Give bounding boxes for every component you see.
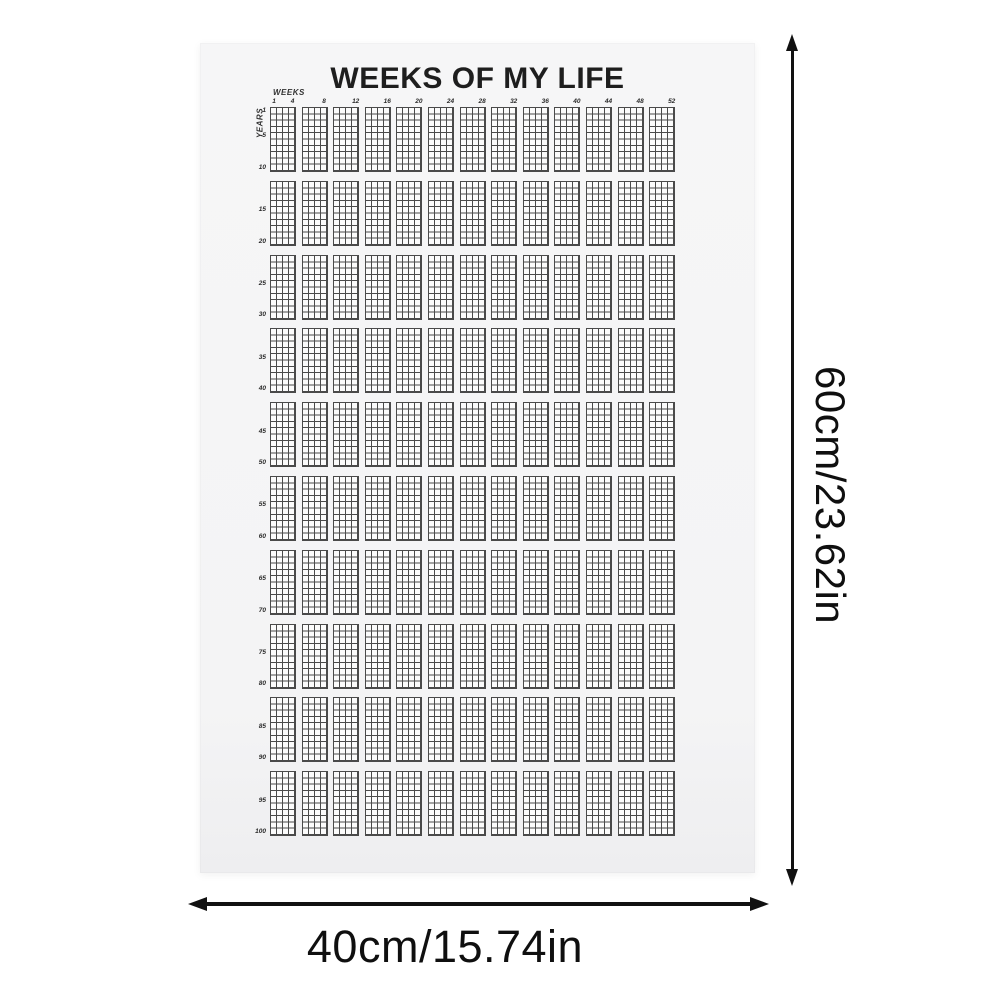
life-grid-block: [396, 107, 422, 172]
week-number: 48: [636, 98, 643, 106]
life-grid-block: [270, 181, 296, 246]
life-grid-block: [586, 624, 612, 689]
life-grid-block: [586, 402, 612, 467]
life-grid-block: [365, 697, 391, 762]
life-grid-block: [365, 550, 391, 615]
life-grid-block: [554, 550, 580, 615]
arrow-right-icon: [750, 897, 769, 911]
life-grid-block: [618, 771, 644, 836]
life-grid-block: [302, 255, 328, 320]
life-grid-block: [270, 328, 296, 393]
year-number: 1: [242, 107, 266, 115]
year-number: 20: [242, 238, 266, 246]
life-grid-block: [649, 476, 675, 541]
life-grid-block: [333, 697, 359, 762]
life-grid-block: [491, 402, 517, 467]
life-grid-block: [396, 550, 422, 615]
life-grid-block: [365, 255, 391, 320]
life-grid-block: [365, 624, 391, 689]
year-number: 5: [242, 132, 266, 140]
life-grid-block: [618, 255, 644, 320]
product-image: WEEKS OF MY LIFE WEEKS YEARS 14812162024…: [0, 0, 1000, 1000]
life-grid-block: [460, 181, 486, 246]
life-grid-block: [618, 550, 644, 615]
week-number: 32: [510, 98, 517, 106]
week-number: 1: [272, 98, 276, 106]
life-grid-block: [428, 771, 454, 836]
life-grid-block: [649, 771, 675, 836]
life-grid-block: [365, 476, 391, 541]
life-grid-block: [428, 255, 454, 320]
life-grid-block: [618, 697, 644, 762]
life-grid-block: [396, 328, 422, 393]
width-dimension-label: 40cm/15.74in: [307, 921, 583, 973]
life-grid-block: [365, 328, 391, 393]
year-number: 65: [242, 575, 266, 583]
life-grid-block: [270, 697, 296, 762]
year-number: 45: [242, 428, 266, 436]
year-number: 55: [242, 501, 266, 509]
year-number: 15: [242, 206, 266, 214]
life-grid-block: [586, 255, 612, 320]
life-grid-block: [523, 402, 549, 467]
life-calendar-poster: WEEKS OF MY LIFE WEEKS YEARS 14812162024…: [200, 43, 755, 873]
life-grid-block: [365, 771, 391, 836]
week-number: 8: [322, 98, 326, 106]
life-grid-block: [523, 328, 549, 393]
life-grid-block: [523, 107, 549, 172]
life-grid: [270, 107, 677, 837]
year-number: 10: [242, 164, 266, 172]
life-grid-block: [523, 181, 549, 246]
week-number: 44: [605, 98, 612, 106]
life-grid-block: [428, 476, 454, 541]
life-grid-block: [649, 550, 675, 615]
life-grid-block: [396, 624, 422, 689]
week-number: 24: [447, 98, 454, 106]
life-grid-block: [365, 181, 391, 246]
life-grid-block: [428, 107, 454, 172]
life-grid-block: [649, 255, 675, 320]
life-grid-block: [586, 550, 612, 615]
life-grid-block: [491, 107, 517, 172]
year-number-labels: 1510152025303540455055606570758085909510…: [242, 107, 266, 837]
life-grid-block: [618, 181, 644, 246]
life-grid-block: [649, 697, 675, 762]
life-grid-block: [586, 107, 612, 172]
life-grid-block: [649, 402, 675, 467]
life-grid-block: [333, 328, 359, 393]
life-grid-block: [270, 624, 296, 689]
life-grid-block: [333, 476, 359, 541]
life-grid-block: [428, 624, 454, 689]
year-number: 100: [242, 828, 266, 836]
week-number: 4: [291, 98, 295, 106]
life-grid-block: [460, 697, 486, 762]
life-grid-block: [460, 255, 486, 320]
life-grid-block: [302, 181, 328, 246]
life-grid-block: [333, 402, 359, 467]
life-grid-block: [649, 328, 675, 393]
life-grid-block: [270, 476, 296, 541]
life-grid-block: [460, 624, 486, 689]
life-grid-block: [491, 771, 517, 836]
life-grid-block: [396, 402, 422, 467]
year-number: 50: [242, 459, 266, 467]
life-grid-block: [460, 328, 486, 393]
life-grid-block: [396, 255, 422, 320]
week-number: 52: [668, 98, 675, 106]
life-grid-block: [460, 550, 486, 615]
life-grid-block: [491, 328, 517, 393]
life-grid-block: [428, 402, 454, 467]
life-grid-block: [554, 771, 580, 836]
life-grid-block: [428, 550, 454, 615]
year-number: 70: [242, 607, 266, 615]
year-number: 25: [242, 280, 266, 288]
life-grid-block: [333, 181, 359, 246]
life-grid-block: [586, 771, 612, 836]
life-grid-block: [365, 402, 391, 467]
life-grid-block: [618, 328, 644, 393]
year-number: 95: [242, 797, 266, 805]
week-number: 28: [478, 98, 485, 106]
life-grid-block: [618, 107, 644, 172]
life-grid-block: [649, 624, 675, 689]
life-grid-block: [554, 624, 580, 689]
life-grid-block: [554, 328, 580, 393]
life-grid-block: [333, 107, 359, 172]
year-number: 80: [242, 680, 266, 688]
year-number: 85: [242, 723, 266, 731]
life-grid-block: [302, 697, 328, 762]
life-grid-block: [523, 697, 549, 762]
life-grid-block: [302, 550, 328, 615]
week-number-labels: 1481216202428323640444852: [270, 96, 677, 106]
life-grid-block: [333, 255, 359, 320]
year-number: 40: [242, 385, 266, 393]
life-grid-block: [554, 476, 580, 541]
life-grid-block: [460, 476, 486, 541]
width-dimension-arrow: [188, 896, 769, 912]
life-grid-block: [586, 181, 612, 246]
life-grid-block: [523, 771, 549, 836]
life-grid-block: [491, 624, 517, 689]
life-grid-block: [428, 697, 454, 762]
life-grid-block: [270, 255, 296, 320]
week-number: 36: [542, 98, 549, 106]
life-grid-block: [270, 107, 296, 172]
life-grid-block: [302, 107, 328, 172]
life-grid-block: [586, 476, 612, 541]
life-grid-block: [333, 550, 359, 615]
year-number: 35: [242, 354, 266, 362]
life-grid-block: [618, 624, 644, 689]
year-number: 60: [242, 533, 266, 541]
life-grid-block: [333, 771, 359, 836]
life-grid-block: [554, 181, 580, 246]
year-number: 75: [242, 649, 266, 657]
life-grid-block: [302, 771, 328, 836]
life-grid-block: [491, 181, 517, 246]
life-grid-block: [523, 255, 549, 320]
year-number: 30: [242, 311, 266, 319]
life-grid-block: [554, 107, 580, 172]
life-grid-block: [618, 476, 644, 541]
life-grid-block: [302, 328, 328, 393]
life-grid-block: [460, 402, 486, 467]
life-grid-block: [491, 697, 517, 762]
life-grid-block: [649, 181, 675, 246]
life-grid-block: [460, 771, 486, 836]
life-grid-block: [554, 255, 580, 320]
life-grid-block: [396, 476, 422, 541]
week-number: 40: [573, 98, 580, 106]
life-grid-block: [586, 697, 612, 762]
life-grid-block: [460, 107, 486, 172]
life-grid-block: [270, 550, 296, 615]
life-grid-block: [491, 255, 517, 320]
life-grid-block: [428, 328, 454, 393]
week-number: 20: [415, 98, 422, 106]
year-number: 90: [242, 754, 266, 762]
horizontal-arrow-shaft: [202, 902, 755, 906]
life-grid-block: [491, 476, 517, 541]
life-grid-block: [618, 402, 644, 467]
life-grid-block: [396, 697, 422, 762]
life-grid-block: [523, 550, 549, 615]
life-grid-block: [302, 402, 328, 467]
arrow-down-icon: [786, 869, 798, 886]
life-grid-block: [396, 181, 422, 246]
life-grid-block: [302, 624, 328, 689]
life-grid-block: [365, 107, 391, 172]
life-grid-block: [649, 107, 675, 172]
life-grid-block: [523, 624, 549, 689]
week-number: 12: [352, 98, 359, 106]
life-grid-block: [428, 181, 454, 246]
life-grid-block: [491, 550, 517, 615]
life-grid-block: [270, 771, 296, 836]
life-grid-block: [333, 624, 359, 689]
life-grid-block: [396, 771, 422, 836]
life-grid-block: [554, 402, 580, 467]
life-grid-block: [554, 697, 580, 762]
vertical-arrow-shaft: [791, 47, 794, 873]
height-dimension-arrow: [786, 34, 798, 886]
height-dimension-label: 60cm/23.62in: [806, 366, 854, 624]
week-number: 16: [384, 98, 391, 106]
life-grid-block: [302, 476, 328, 541]
life-grid-block: [586, 328, 612, 393]
life-grid-block: [523, 476, 549, 541]
life-grid-block: [270, 402, 296, 467]
